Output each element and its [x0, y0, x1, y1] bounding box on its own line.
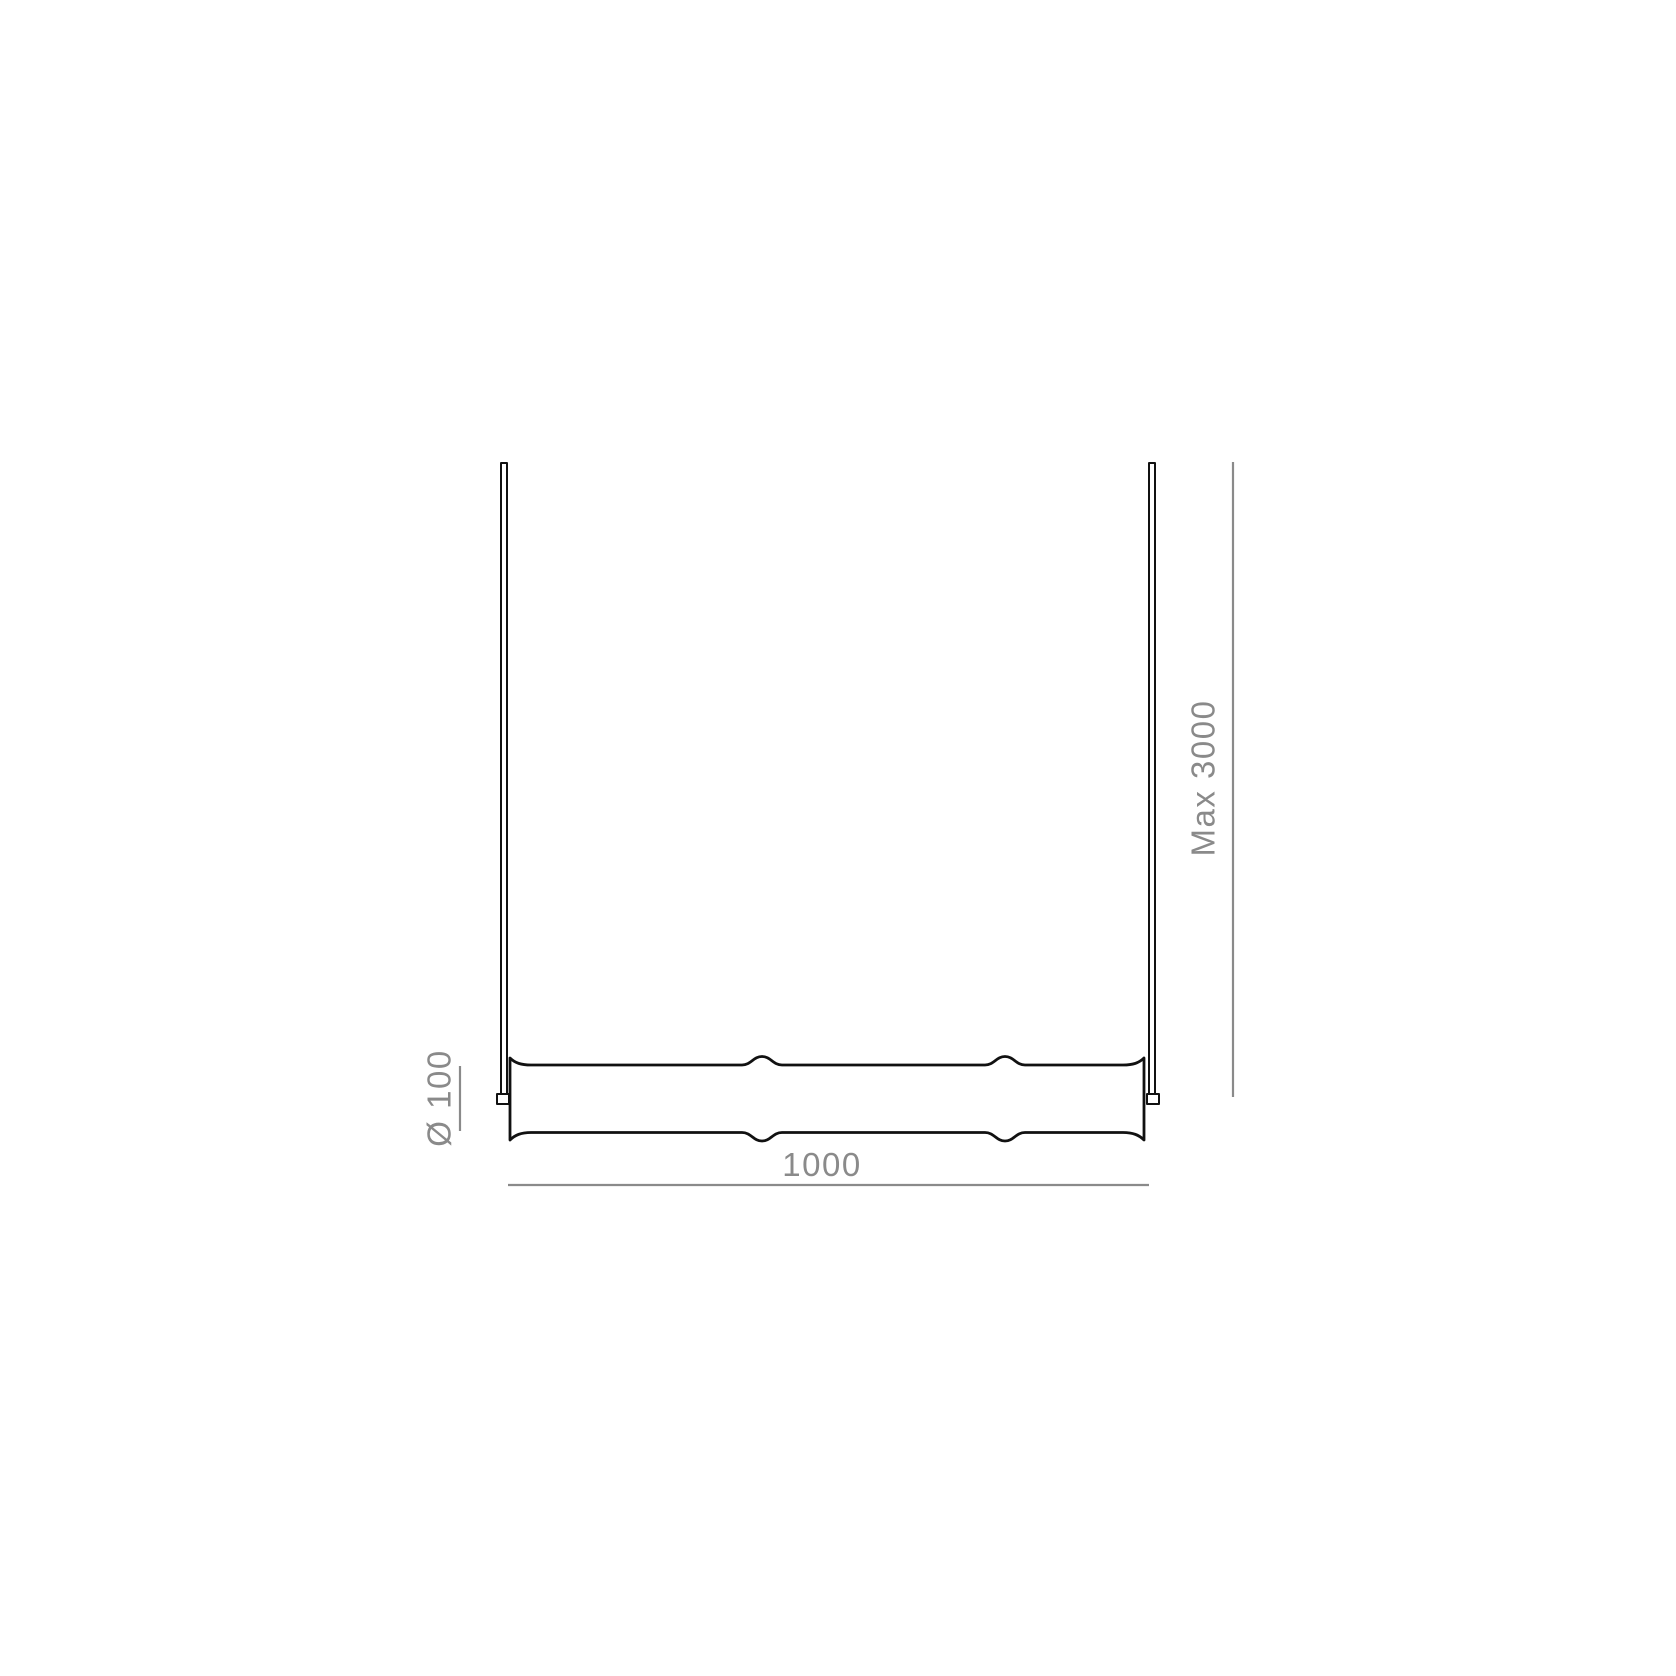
lamp-body-outline — [510, 1057, 1144, 1142]
right-suspension-rod — [1149, 463, 1155, 1095]
diameter-label: Ø 100 — [421, 1049, 458, 1146]
right-cable-connector — [1147, 1094, 1159, 1104]
diagram-page: Max 3000 1000 Ø 100 — [0, 0, 1676, 1676]
left-suspension-rod — [501, 463, 507, 1095]
max-height-label: Max 3000 — [1185, 700, 1222, 857]
pendant-lamp-dimension-drawing: Max 3000 1000 Ø 100 — [0, 0, 1676, 1676]
length-label: 1000 — [782, 1146, 861, 1183]
left-cable-connector — [497, 1094, 509, 1104]
